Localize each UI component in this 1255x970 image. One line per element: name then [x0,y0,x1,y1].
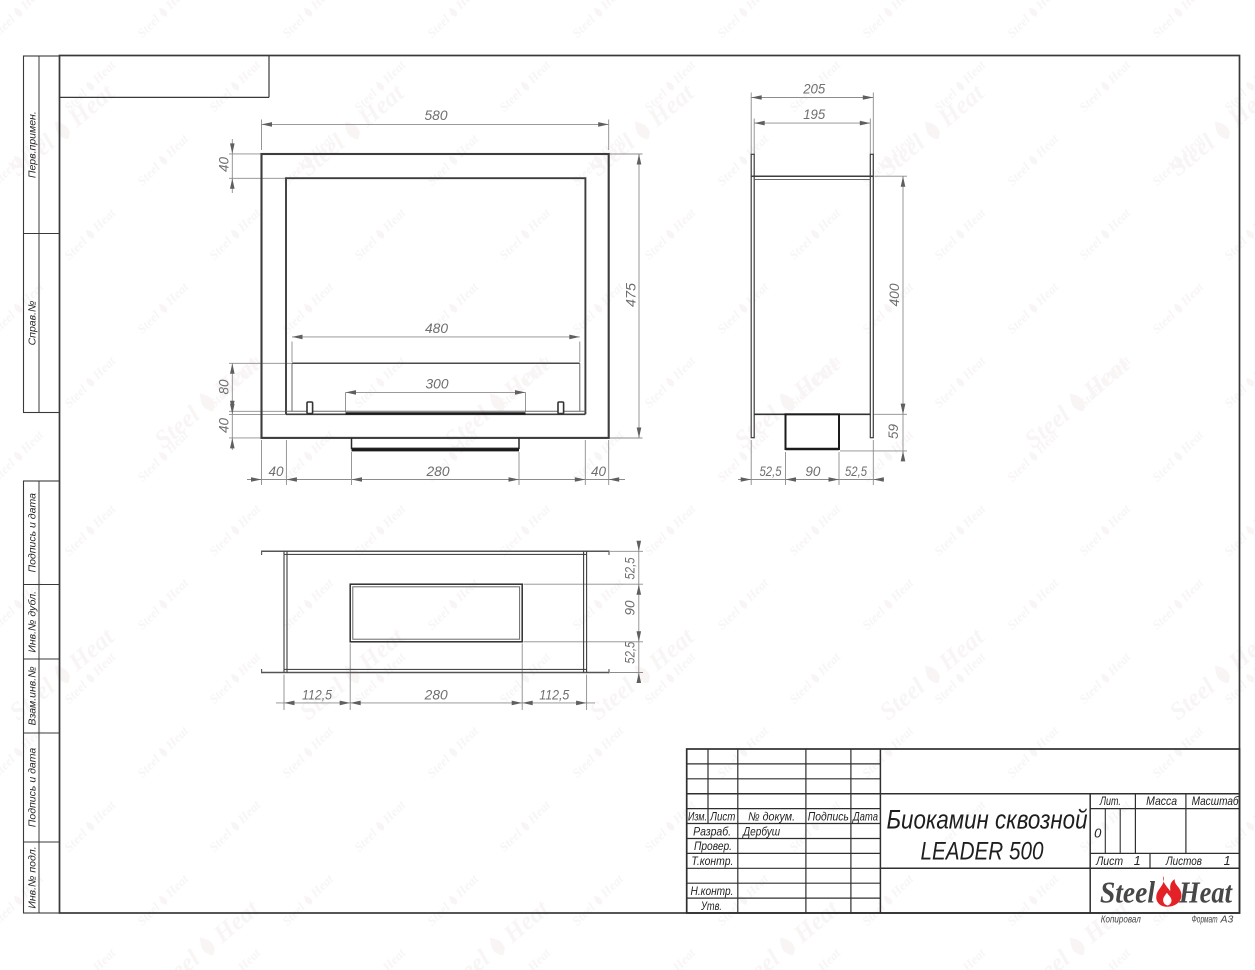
svg-text:475: 475 [624,282,639,307]
svg-text:195: 195 [803,107,825,122]
svg-text:Провер.: Провер. [694,839,732,853]
svg-text:Перв.примен.: Перв.примен. [27,111,39,178]
svg-text:Дербуш: Дербуш [741,824,780,838]
svg-text:205: 205 [802,81,825,96]
svg-text:Инв.№ подл.: Инв.№ подл. [27,846,39,908]
svg-text:Биокамин сквозной: Биокамин сквозной [887,805,1088,835]
svg-text:Подпись: Подпись [808,809,849,823]
svg-text:52,5: 52,5 [622,557,637,579]
svg-text:Дата: Дата [851,809,878,823]
svg-text:Н.контр.: Н.контр. [691,884,734,898]
svg-text:Heat: Heat [1178,875,1233,910]
svg-text:90: 90 [805,464,821,479]
svg-text:№ докум.: № докум. [748,809,795,823]
svg-text:Изм.: Изм. [688,809,707,823]
svg-text:Т.контр.: Т.контр. [691,854,733,868]
svg-text:Масштаб: Масштаб [1192,794,1240,808]
svg-text:480: 480 [425,321,448,336]
svg-text:0: 0 [1094,826,1102,841]
svg-text:Утв.: Утв. [700,899,722,913]
svg-text:Лист: Лист [1095,854,1123,868]
svg-text:Разраб.: Разраб. [693,824,731,838]
svg-text:Лит.: Лит. [1099,794,1121,808]
svg-text:280: 280 [424,687,449,702]
svg-text:300: 300 [426,377,449,392]
svg-text:Steel: Steel [1100,875,1155,910]
svg-text:40: 40 [216,157,231,173]
svg-text:Лист: Лист [709,809,735,823]
svg-text:Масса: Масса [1146,794,1177,808]
svg-text:580: 580 [425,108,448,123]
svg-text:Взам.инв.№: Взам.инв.№ [27,666,39,725]
svg-text:40: 40 [216,418,231,434]
svg-text:52,5: 52,5 [760,464,782,479]
svg-text:40: 40 [591,464,607,479]
svg-text:112,5: 112,5 [539,687,569,702]
svg-text:Подпись и дата: Подпись и дата [27,748,39,828]
svg-text:90: 90 [622,600,637,616]
svg-text:40: 40 [268,464,284,479]
svg-text:59: 59 [886,424,901,440]
svg-text:80: 80 [216,379,231,395]
svg-text:52,5: 52,5 [622,641,637,663]
svg-text:400: 400 [887,283,902,306]
svg-text:Копировал: Копировал [1101,914,1141,925]
svg-text:1: 1 [1224,854,1231,868]
svg-text:112,5: 112,5 [302,687,332,702]
svg-text:280: 280 [425,464,450,479]
svg-text:Инв.№ дубл.: Инв.№ дубл. [27,591,39,653]
svg-text:Листов: Листов [1165,854,1202,868]
svg-text:Подпись и дата: Подпись и дата [27,493,39,573]
svg-text:Справ.№: Справ.№ [27,301,39,346]
svg-text:LEADER 500: LEADER 500 [921,837,1044,865]
svg-text:Формат: Формат [1192,913,1218,925]
svg-text:А3: А3 [1220,913,1234,925]
svg-text:1: 1 [1134,854,1141,868]
svg-text:52,5: 52,5 [845,464,867,479]
